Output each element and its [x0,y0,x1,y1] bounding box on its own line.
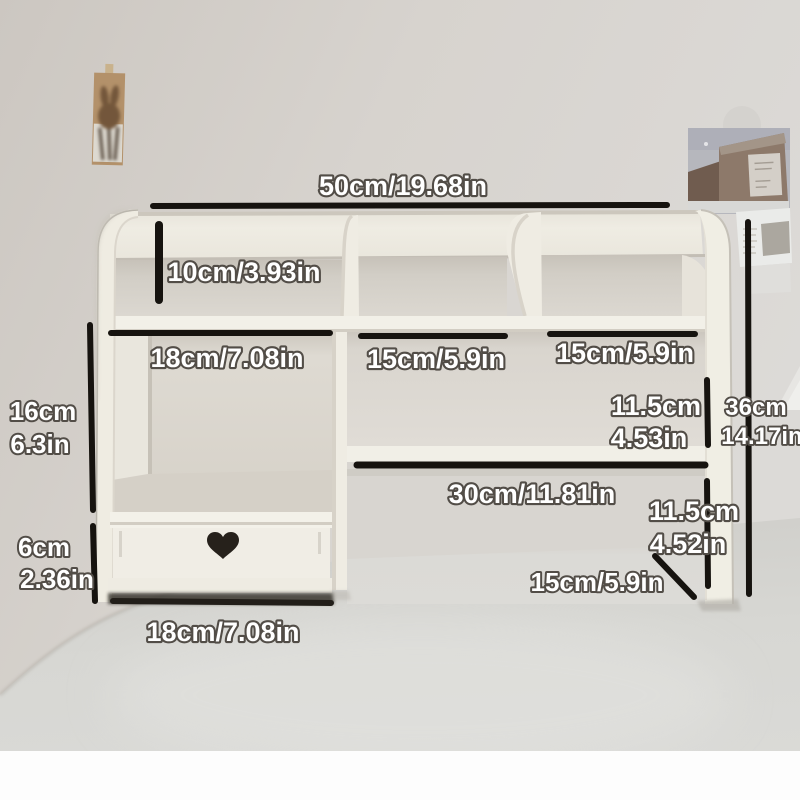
svg-text:6cm: 6cm [18,532,70,562]
svg-text:15cm/5.9in: 15cm/5.9in [367,344,505,374]
svg-text:15cm/5.9in: 15cm/5.9in [531,567,664,597]
svg-text:11.5cm: 11.5cm [611,391,701,421]
svg-text:4.52in: 4.52in [650,529,727,559]
svg-text:14.17in: 14.17in [721,423,800,450]
svg-text:11.5cm: 11.5cm [649,496,739,526]
svg-text:10cm/3.93in: 10cm/3.93in [167,257,320,287]
svg-text:30cm/11.81in: 30cm/11.81in [449,479,616,509]
svg-text:2.36in: 2.36in [20,564,94,594]
svg-text:18cm/7.08in: 18cm/7.08in [150,343,303,373]
svg-text:4.53in: 4.53in [611,423,688,453]
svg-text:36cm: 36cm [725,394,786,421]
svg-text:50cm/19.68in: 50cm/19.68in [319,171,487,201]
svg-text:18cm/7.08in: 18cm/7.08in [146,617,299,647]
svg-text:16cm: 16cm [10,396,77,426]
svg-text:6.3in: 6.3in [10,429,69,459]
svg-text:15cm/5.9in: 15cm/5.9in [556,338,694,368]
